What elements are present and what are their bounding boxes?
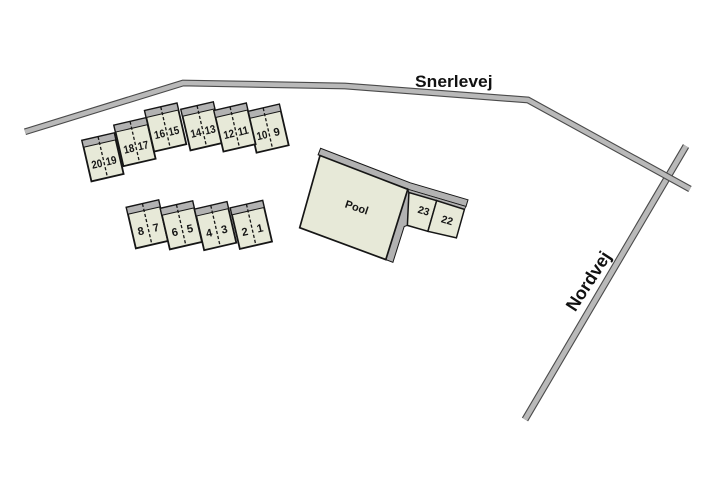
svg-text:Snerlevej: Snerlevej <box>415 72 493 91</box>
